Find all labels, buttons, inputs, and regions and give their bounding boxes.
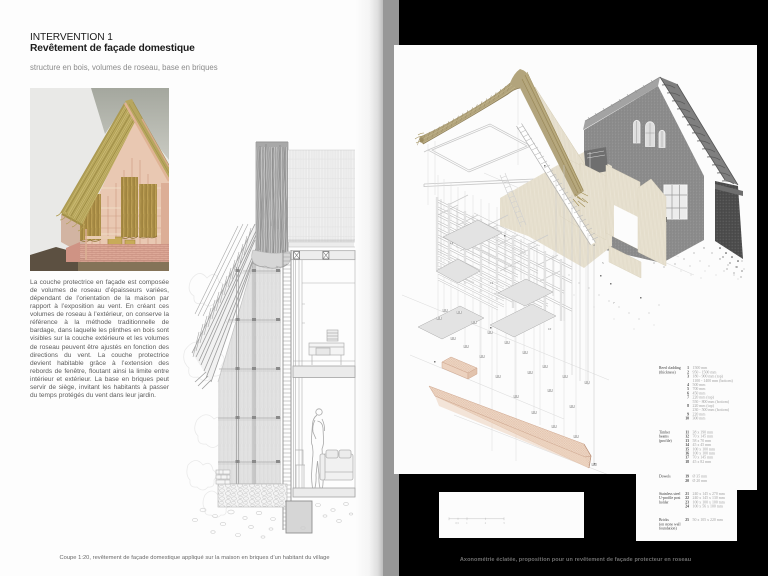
svg-text:14: 14 — [450, 241, 454, 245]
svg-text:24: 24 — [685, 505, 689, 509]
svg-text:5: 5 — [602, 261, 604, 265]
svg-text:12: 12 — [490, 281, 494, 285]
svg-text:100 x 56 x 100 mm: 100 x 56 x 100 mm — [693, 505, 723, 509]
svg-text:Ø 20 mm: Ø 20 mm — [693, 479, 708, 483]
svg-text:25: 25 — [685, 518, 689, 522]
svg-text:2: 2 — [485, 522, 487, 525]
svg-text:0,5: 0,5 — [456, 522, 460, 525]
svg-text:50 x 105 x 220 mm: 50 x 105 x 220 mm — [693, 518, 723, 522]
svg-text:3: 3 — [503, 522, 505, 525]
svg-text:7: 7 — [613, 301, 615, 305]
svg-text:1: 1 — [466, 522, 468, 525]
svg-text:holder: holder — [659, 500, 669, 504]
svg-text:10: 10 — [548, 327, 552, 331]
svg-text:foundation): foundation) — [659, 527, 677, 531]
svg-text:20: 20 — [685, 479, 689, 483]
